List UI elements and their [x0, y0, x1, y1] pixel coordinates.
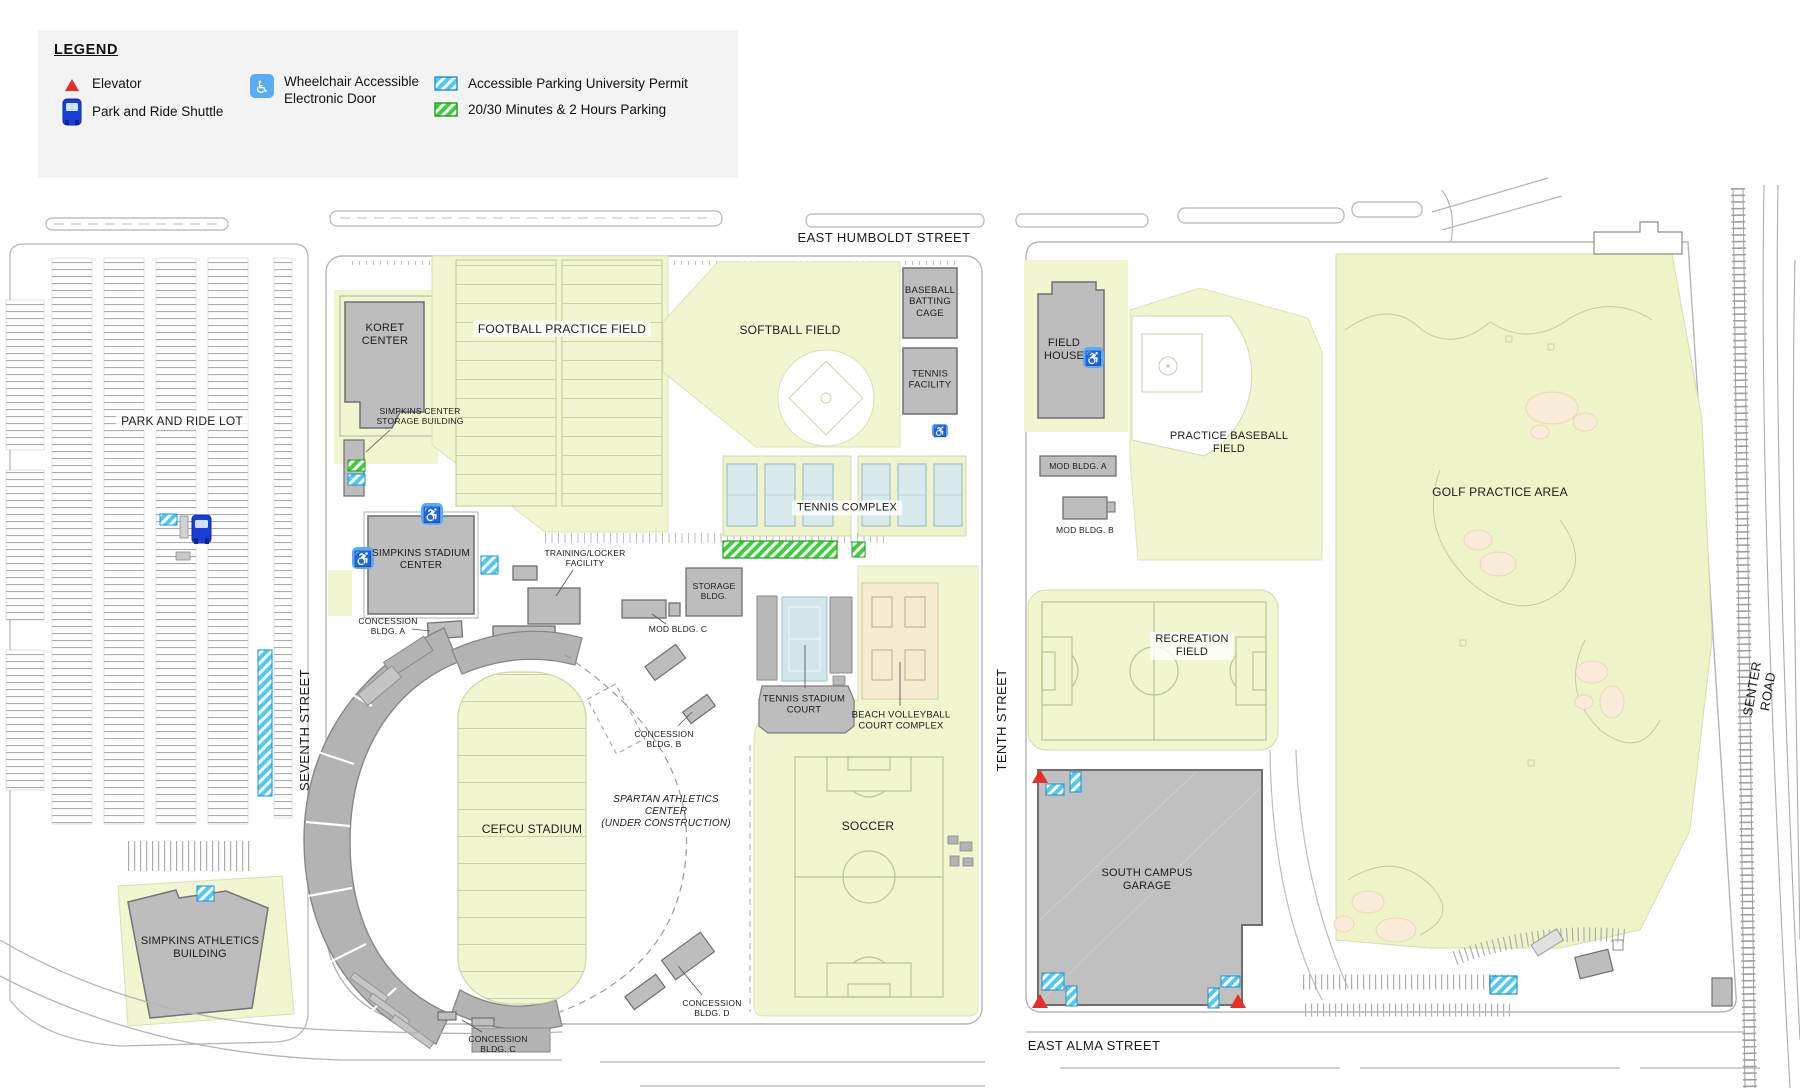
center-block: ♿ — [304, 256, 982, 1052]
accessible-parking-marker — [1490, 976, 1517, 994]
legend-timed-parking-label: 20/30 Minutes & 2 Hours Parking — [468, 102, 666, 119]
railroad — [1733, 188, 1755, 1088]
label-recreation-field: RECREATION FIELD — [1150, 632, 1233, 660]
shuttle-bus-icon — [192, 515, 211, 544]
label-concession-bldg-c: CONCESSION BLDG. C — [468, 1034, 527, 1054]
small-building — [1712, 978, 1732, 1006]
training-locker-facility-building — [528, 588, 580, 624]
label-east-alma-street: EAST ALMA STREET — [1028, 1038, 1161, 1054]
golf-practice-area — [1334, 254, 1712, 948]
legend-title: LEGEND — [54, 42, 118, 58]
svg-text:♿: ♿ — [354, 550, 373, 568]
label-simpkins-stadium-center: SIMPKINS STADIUM CENTER — [372, 548, 470, 572]
wheelchair-access-icon: ♿ — [352, 547, 374, 569]
label-tenth-street: TENTH STREET — [994, 668, 1010, 771]
legend: LEGEND Elevator Park and Ride Shuttle ♿ … — [38, 30, 738, 178]
small-building — [1107, 502, 1115, 512]
right-block — [1024, 222, 1736, 1012]
elevator-icon — [64, 78, 80, 92]
wheelchair-access-icon: ♿ — [250, 74, 274, 98]
svg-text:♿: ♿ — [423, 506, 442, 524]
label-field-house: FIELD HOUSE — [1044, 337, 1084, 363]
label-tennis-stadium-court: TENNIS STADIUM COURT — [763, 694, 845, 717]
legend-elevator-label: Elevator — [92, 76, 142, 93]
accessible-parking-marker — [481, 556, 498, 574]
label-concession-bldg-b: CONCESSION BLDG. B — [634, 729, 693, 749]
senter-road — [1763, 185, 1800, 1088]
accessible-parking-swatch — [434, 76, 458, 91]
svg-text:♿: ♿ — [1085, 350, 1102, 367]
label-concession-bldg-d: CONCESSION BLDG. D — [682, 998, 741, 1018]
label-baseball-batting-cage: BASEBALL BATTING CAGE — [905, 285, 955, 319]
label-tennis-facility: TENNIS FACILITY — [909, 369, 952, 392]
wheelchair-access-icon: ♿ — [1083, 347, 1104, 368]
building-outline — [1594, 222, 1682, 254]
label-softball-field: SOFTBALL FIELD — [739, 323, 840, 337]
label-soccer: SOCCER — [842, 819, 895, 833]
concession-bldg-c-building — [472, 1018, 494, 1026]
label-football-practice-field: FOOTBALL PRACTICE FIELD — [473, 321, 651, 337]
label-tennis-complex: TENNIS COMPLEX — [792, 500, 902, 515]
label-mod-bldg-c: MOD BLDG. C — [649, 624, 707, 634]
label-park-and-ride-lot: PARK AND RIDE LOT — [116, 413, 248, 429]
wheelchair-access-icon: ♿ — [421, 503, 443, 525]
label-storage-bldg: STORAGE BLDG. — [693, 581, 736, 601]
accessible-parking-strip — [258, 650, 272, 796]
label-golf-practice-area: GOLF PRACTICE AREA — [1432, 485, 1568, 499]
park-and-ride-shuttle-icon — [62, 98, 82, 126]
stadium-field — [458, 672, 586, 1004]
label-simpkins-athletics-building: SIMPKINS ATHLETICS BUILDING — [141, 935, 259, 961]
timed-parking-strip — [723, 541, 837, 558]
label-cefcu-stadium: CEFCU STADIUM — [482, 822, 582, 836]
park-and-ride-lot — [6, 244, 308, 1046]
label-east-humboldt-street: EAST HUMBOLDT STREET — [798, 230, 971, 246]
label-seventh-street: SEVENTH STREET — [297, 669, 313, 791]
small-building — [513, 566, 537, 580]
recreation-field — [1028, 590, 1278, 750]
label-practice-baseball-field: PRACTICE BASEBALL FIELD — [1170, 430, 1288, 456]
label-south-campus-garage: SOUTH CAMPUS GARAGE — [1101, 867, 1192, 893]
small-building — [669, 603, 680, 616]
beach-volleyball-court-complex — [862, 583, 938, 706]
label-beach-volleyball-court-complex: BEACH VOLLEYBALL COURT COMPLEX — [852, 710, 951, 733]
label-simpkins-center-storage-building: SIMPKINS CENTER STORAGE BUILDING — [376, 406, 463, 426]
wheelchair-glyph: ♿ — [933, 425, 947, 438]
football-practice-field — [432, 256, 668, 532]
accessible-parking-marker — [348, 474, 365, 485]
label-concession-bldg-a: CONCESSION BLDG. A — [358, 616, 417, 636]
accessible-parking-marker — [197, 886, 214, 901]
label-mod-bldg-a: MOD BLDG. A — [1049, 461, 1106, 471]
timed-parking-swatch — [434, 102, 458, 117]
legend-wheelchair-label: Wheelchair Accessible Electronic Door — [284, 74, 419, 108]
practice-baseball-field — [1130, 288, 1322, 560]
mod-bldg-c-building — [622, 600, 666, 618]
label-koret-center: KORET CENTER — [362, 322, 408, 348]
concession-bldg-c-building — [438, 1012, 456, 1020]
mod-bldg-b-building — [1063, 497, 1107, 519]
svg-text:♿: ♿ — [254, 78, 269, 98]
label-training-locker-facility: TRAINING/LOCKER FACILITY — [545, 548, 626, 568]
campus-map-page: ♿ — [0, 0, 1800, 1090]
legend-shuttle-label: Park and Ride Shuttle — [92, 104, 223, 121]
label-spartan-athletics-center: SPARTAN ATHLETICS CENTER (UNDER CONSTRUC… — [601, 794, 731, 830]
timed-parking-marker — [348, 460, 365, 471]
label-mod-bldg-b: MOD BLDG. B — [1056, 525, 1114, 535]
legend-accessible-parking-label: Accessible Parking University Permit — [468, 76, 688, 93]
accessible-parking-marker — [160, 514, 177, 525]
timed-parking-marker — [852, 542, 865, 557]
